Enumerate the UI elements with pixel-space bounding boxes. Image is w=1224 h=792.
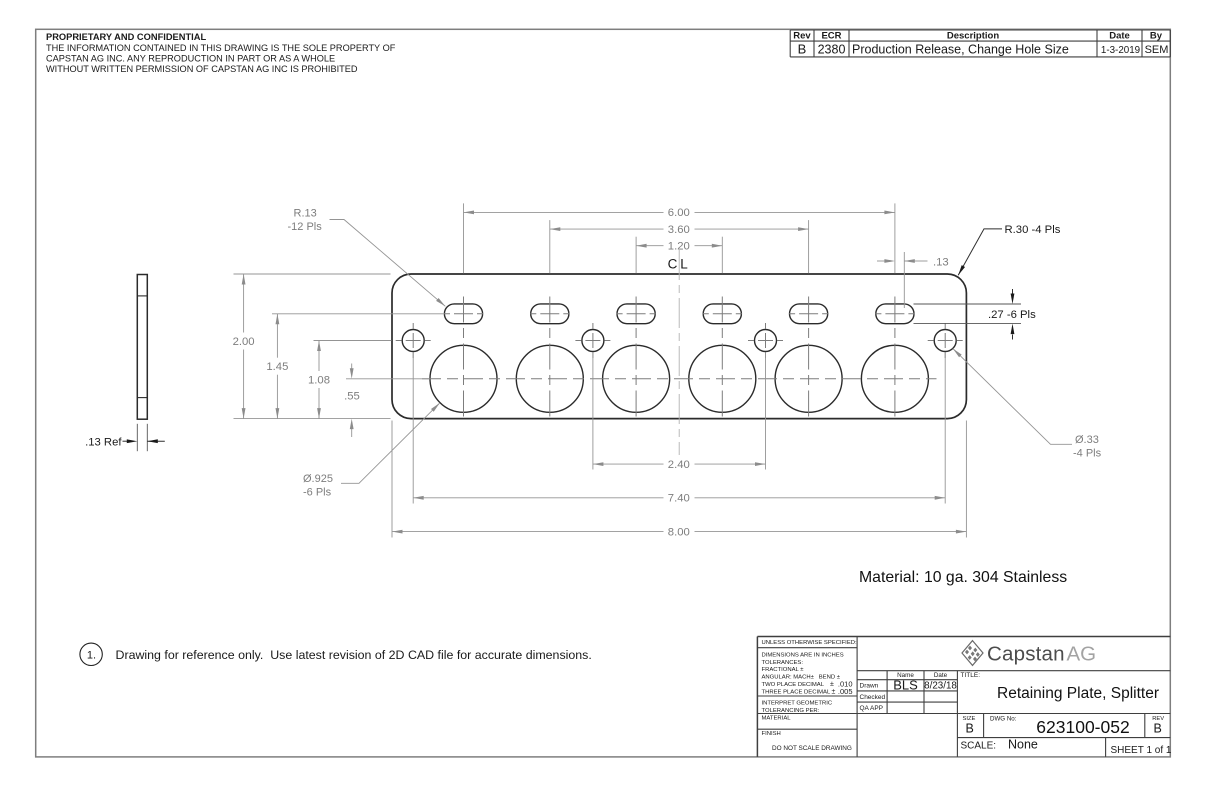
svg-text:DO NOT SCALE DRAWING: DO NOT SCALE DRAWING	[772, 745, 852, 752]
svg-text:1.: 1.	[87, 649, 96, 661]
svg-text:Date: Date	[934, 672, 948, 679]
svg-text:Capstan: Capstan	[987, 643, 1065, 666]
svg-text:ECR: ECR	[821, 31, 841, 42]
svg-text:TOLERANCING PER:: TOLERANCING PER:	[762, 708, 820, 714]
svg-text:Drawn: Drawn	[860, 683, 879, 690]
svg-text:2.00: 2.00	[233, 336, 255, 348]
svg-text:-6 Pls: -6 Pls	[303, 487, 332, 499]
svg-text:B: B	[966, 722, 974, 736]
svg-text:Drawing for reference only. U: Drawing for reference only. Use latest r…	[116, 648, 592, 662]
svg-text:UNLESS OTHERWISE SPECIFIED:: UNLESS OTHERWISE SPECIFIED:	[762, 640, 858, 646]
svg-text:.13: .13	[933, 256, 949, 268]
svg-text:WITHOUT WRITTEN PERMISSION OF: WITHOUT WRITTEN PERMISSION OF CAPSTAN AG…	[46, 64, 358, 74]
svg-text:SEM: SEM	[1145, 44, 1169, 56]
svg-text:None: None	[1008, 738, 1038, 752]
svg-text:BLS: BLS	[893, 678, 918, 693]
svg-text:L: L	[680, 257, 688, 272]
svg-text:1-3-2019: 1-3-2019	[1101, 45, 1140, 56]
svg-text:.005: .005	[838, 687, 853, 696]
svg-text:CAPSTAN AG INC. ANY REPRODUCTI: CAPSTAN AG INC. ANY REPRODUCTION IN PART…	[46, 53, 335, 63]
svg-text:1.45: 1.45	[266, 361, 288, 373]
svg-text:Production Release, Change Hol: Production Release, Change Hole Size	[852, 42, 1069, 56]
svg-text:2380: 2380	[818, 42, 846, 56]
svg-text:Date: Date	[1109, 31, 1130, 42]
svg-text:±: ±	[830, 681, 834, 688]
svg-text:TWO PLACE DECIMAL: TWO PLACE DECIMAL	[762, 682, 825, 688]
svg-text:PROPRIETARY AND CONFIDENTIAL: PROPRIETARY AND CONFIDENTIAL	[46, 32, 206, 42]
svg-text:SCALE:: SCALE:	[961, 740, 997, 751]
svg-text:Description: Description	[947, 31, 999, 42]
svg-text:R.30 -4 Pls: R.30 -4 Pls	[1005, 224, 1061, 236]
svg-text:INTERPRET GEOMETRIC: INTERPRET GEOMETRIC	[762, 701, 833, 707]
svg-text:Material: 10 ga. 304 Stainless: Material: 10 ga. 304 Stainless	[859, 569, 1067, 586]
svg-text:8/23/18: 8/23/18	[924, 681, 957, 692]
svg-text:By: By	[1150, 31, 1163, 42]
svg-text:7.40: 7.40	[668, 493, 690, 505]
svg-text:B: B	[798, 41, 807, 56]
svg-text:-4 Pls: -4 Pls	[1073, 448, 1102, 460]
svg-text:±: ±	[832, 688, 836, 695]
svg-text:Ø.925: Ø.925	[303, 473, 333, 485]
svg-text:C: C	[668, 257, 678, 272]
svg-text:8.00: 8.00	[668, 526, 690, 538]
svg-text:-12 Pls: -12 Pls	[288, 221, 323, 233]
svg-text:FINISH: FINISH	[762, 731, 781, 737]
svg-text:DIMENSIONS ARE IN INCHES: DIMENSIONS ARE IN INCHES	[762, 653, 844, 659]
svg-text:AG: AG	[1067, 643, 1097, 666]
svg-text:B: B	[1154, 722, 1162, 736]
svg-text:SHEET 1 of 1: SHEET 1 of 1	[1111, 745, 1172, 756]
svg-text:DWG No:: DWG No:	[990, 716, 1017, 723]
svg-text:TOLERANCES:: TOLERANCES:	[762, 660, 804, 666]
svg-text:Checked: Checked	[860, 694, 886, 701]
svg-text:Retaining Plate, Splitter: Retaining Plate, Splitter	[997, 685, 1159, 702]
svg-text:.55: .55	[344, 391, 360, 403]
svg-text:2.40: 2.40	[668, 459, 690, 471]
svg-text:1.20: 1.20	[668, 241, 690, 253]
svg-text:THREE PLACE DECIMAL: THREE PLACE DECIMAL	[762, 689, 831, 695]
svg-text:MATERIAL: MATERIAL	[762, 716, 792, 722]
svg-text:1.08: 1.08	[308, 374, 330, 386]
svg-text:R.13: R.13	[294, 208, 317, 220]
svg-text:THE INFORMATION CONTAINED IN T: THE INFORMATION CONTAINED IN THIS DRAWIN…	[46, 43, 396, 53]
svg-text:QA APP: QA APP	[860, 705, 884, 712]
svg-text:TITLE:: TITLE:	[961, 672, 981, 679]
svg-text:.13 Ref: .13 Ref	[85, 436, 122, 448]
svg-text:ANGULAR: MACH± BEND ±: ANGULAR: MACH± BEND ±	[762, 674, 841, 680]
svg-text:Ø.33: Ø.33	[1075, 434, 1099, 446]
svg-text:Rev: Rev	[793, 31, 811, 42]
svg-text:.27 -6 Pls: .27 -6 Pls	[988, 309, 1036, 321]
svg-text:623100-052: 623100-052	[1036, 717, 1129, 737]
svg-text:3.60: 3.60	[668, 224, 690, 236]
svg-text:6.00: 6.00	[668, 207, 690, 219]
svg-text:FRACTIONAL ±: FRACTIONAL ±	[762, 667, 805, 673]
